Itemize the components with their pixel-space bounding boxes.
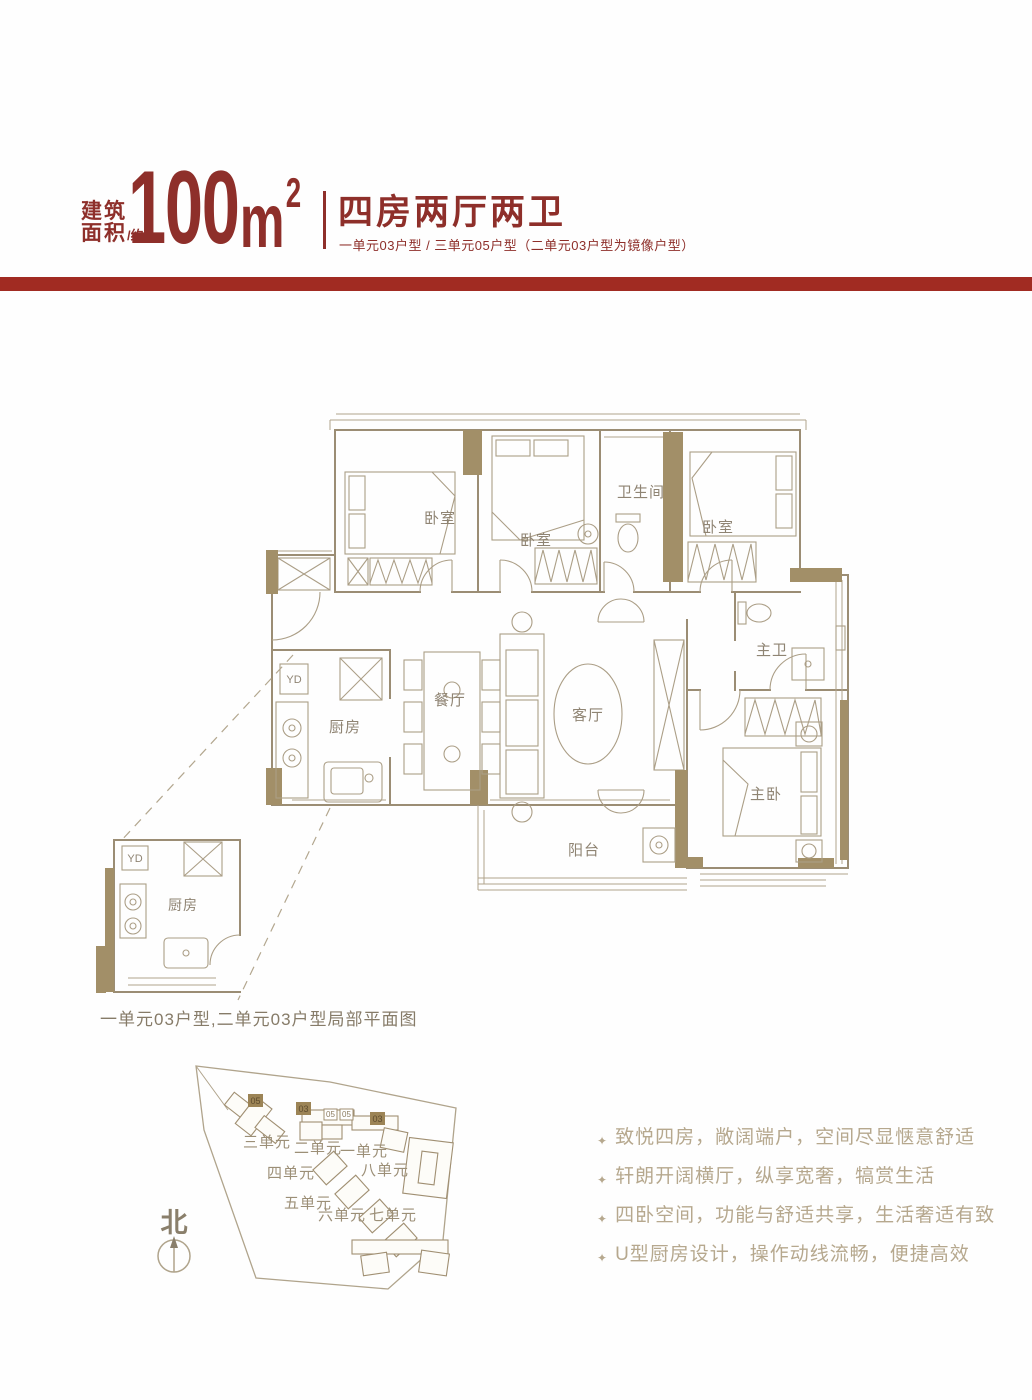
diamond-bullet-icon: ✦ <box>597 1131 608 1152</box>
unit-label-7: 七单元 <box>369 1207 417 1224</box>
room-label-dining: 餐厅 <box>434 692 466 709</box>
unit-label-3: 三单元 <box>243 1134 291 1151</box>
room-label-bathroom: 卫生间 <box>617 484 665 501</box>
furniture-bedroom-3 <box>688 452 796 582</box>
feature-text: 轩朗开阔横厅，纵享宽奢，犒赏生活 <box>615 1166 935 1187</box>
room-label-master-bedroom: 主卧 <box>750 786 782 803</box>
diamond-bullet-icon: ✦ <box>597 1209 608 1230</box>
north-indicator: 北 <box>158 1208 190 1272</box>
marker-unit3: 05 <box>250 1096 260 1106</box>
detail-plan-caption: 一单元03户型,二单元03户型局部平面图 <box>100 1005 418 1030</box>
yd-label-main: YD <box>286 674 301 686</box>
furniture-balcony <box>643 828 675 862</box>
poster-page: 建筑 面积/约 100m2 四房两厅两卫 一单元03户型 / 三单元05户型（二… <box>0 0 1032 1400</box>
furniture-dining <box>404 652 500 790</box>
furniture-master-bedroom <box>723 698 822 862</box>
building-unit-8 <box>403 1138 453 1199</box>
room-label-bedroom-3: 卧室 <box>702 519 734 536</box>
room-label-balcony: 阳台 <box>568 842 600 859</box>
feature-text: U型厨房设计，操作动线流畅，便捷高效 <box>615 1244 970 1265</box>
plate-05-b: 05 <box>342 1110 351 1119</box>
feature-text: 致悦四房，敞阔端户，空间尽显惬意舒适 <box>615 1127 975 1148</box>
diamond-bullet-icon: ✦ <box>597 1248 608 1269</box>
feature-text: 四卧空间，功能与舒适共享，生活奢适有致 <box>615 1205 995 1226</box>
windows-and-railings <box>272 437 848 890</box>
unit-label-6: 六单元 <box>318 1207 366 1224</box>
feature-item: ✦U型厨房设计，操作动线流畅，便捷高效 <box>597 1244 995 1269</box>
feature-list: ✦致悦四房，敞阔端户，空间尽显惬意舒适 ✦轩朗开阔横厅，纵享宽奢，犒赏生活 ✦四… <box>597 1127 995 1283</box>
furniture-bathroom <box>578 514 640 552</box>
unit-label-2: 二单元 <box>294 1140 342 1157</box>
north-label: 北 <box>161 1208 188 1238</box>
unit-label-8: 八单元 <box>361 1162 409 1179</box>
marker-unit2: 03 <box>298 1104 308 1114</box>
feature-item: ✦轩朗开阔横厅，纵享宽奢，犒赏生活 <box>597 1166 995 1191</box>
furniture-master-bath <box>738 602 845 680</box>
detail-kitchen-label: 厨房 <box>168 897 198 913</box>
detail-link-lines <box>120 655 330 1000</box>
detail-kitchen-plan: YD 厨房 <box>96 840 240 993</box>
furniture-bedroom-2 <box>492 436 597 584</box>
room-labels: 卧室 卧室 卫生间 卧室 主卫 厨房 餐厅 客厅 主卧 阳台 YD <box>286 484 788 859</box>
unit-label-4: 四单元 <box>267 1165 315 1182</box>
room-label-bedroom-2: 卧室 <box>520 532 552 549</box>
yd-label-detail: YD <box>127 853 142 865</box>
site-plan: 05 03 05 05 03 三单元 二单元 一单元 四单元 八单元 五单元 六… <box>158 1066 456 1289</box>
plate-05-a: 05 <box>326 1110 335 1119</box>
furniture-bedroom-1 <box>345 472 455 585</box>
feature-item: ✦四卧空间，功能与舒适共享，生活奢适有致 <box>597 1205 995 1230</box>
room-label-living: 客厅 <box>572 707 604 724</box>
unit-label-1: 一单元 <box>340 1143 388 1160</box>
room-label-bedroom-1: 卧室 <box>424 510 456 527</box>
marker-unit1: 03 <box>372 1114 382 1124</box>
diamond-bullet-icon: ✦ <box>597 1170 608 1191</box>
room-label-kitchen: 厨房 <box>329 719 361 736</box>
building-unit-6-7 <box>352 1240 449 1276</box>
room-label-master-bath: 主卫 <box>756 642 788 659</box>
feature-item: ✦致悦四房，敞阔端户，空间尽显惬意舒适 <box>597 1127 995 1152</box>
